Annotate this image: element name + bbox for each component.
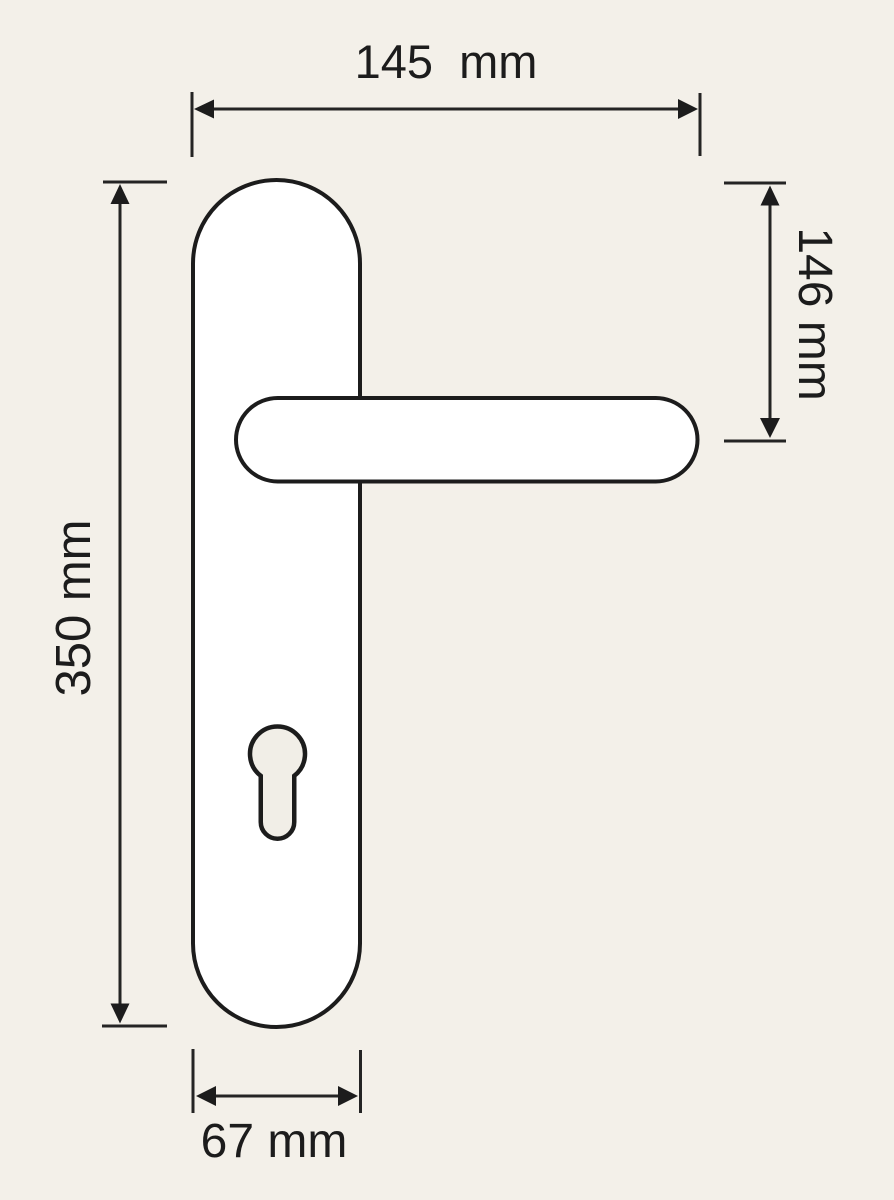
svg-text:146 mm: 146 mm — [788, 227, 841, 400]
svg-text:67 mm: 67 mm — [201, 1115, 348, 1168]
svg-text:350 mm: 350 mm — [47, 519, 101, 696]
svg-text:145 mm: 145 mm — [355, 35, 538, 88]
